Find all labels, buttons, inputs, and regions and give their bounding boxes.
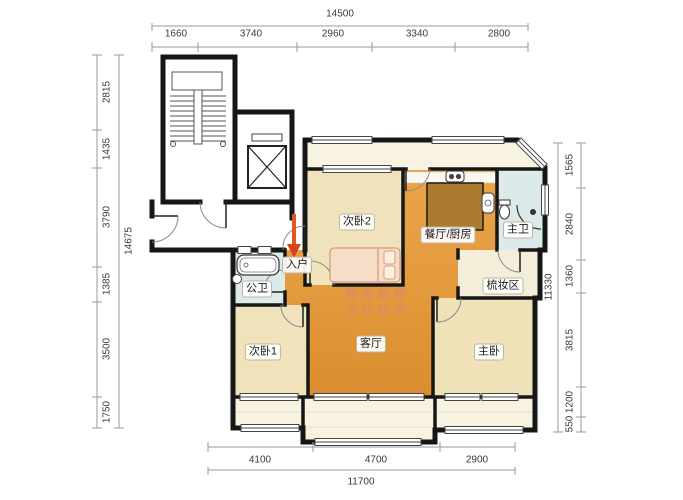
stairs-icon [170,72,226,147]
bed-icon [330,248,400,282]
dim-line-left-segments [92,55,102,428]
room-label-public-bath: 公卫 [242,281,272,298]
room-label-master-bath: 主卫 [503,222,533,239]
corridor-walls [152,202,292,250]
dim-top-segment-4: 2800 [488,29,510,40]
room-label-dining-kitchen: 餐厅/厨房 [420,227,475,244]
window-balcony-center [315,439,421,446]
bathtub-icon [237,255,279,275]
room-label-bedroom1: 次卧1 [245,344,281,361]
dim-left-segment-3: 1385 [102,273,113,295]
dim-line-top-segments [152,42,528,52]
toilet-icon [499,200,510,219]
dim-left-total: 14675 [124,227,135,255]
dim-right-segment-0: 1565 [565,154,576,176]
room-label-master-bedroom: 主卧 [474,344,504,361]
room-label-bedroom2: 次卧2 [339,214,375,231]
dim-right-segment-2: 1360 [565,265,576,287]
dim-right-total: 11330 [544,273,555,300]
floorplan-page: 楼房装修 设计助手 次卧2 餐厅/厨房 主卫 入户 公卫 梳妆区 次卧1 客厅 … [0,0,683,500]
balcony-right-floor [435,397,535,430]
dim-line-right-total [553,143,563,432]
window-bay-top [312,137,372,144]
dim-bottom-segment-1: 4700 [365,455,387,466]
dim-right-segment-1: 2840 [565,213,576,235]
dim-line-left-total [114,55,124,428]
dim-bottom-segment-2: 2900 [466,455,488,466]
elevator-icon [248,134,286,188]
room-label-dressing-area: 梳妆区 [483,278,524,295]
dim-left-segment-0: 2815 [102,81,113,103]
dim-line-right-segments [576,143,586,432]
balcony-center-floor [303,397,435,442]
dim-right-segment-4: 1200 [565,391,576,413]
dim-top-segment-2: 2960 [322,29,344,40]
dim-right-segment-5: 550 [565,416,576,433]
window-bedroom1-south [240,394,298,401]
window-living-south-2 [369,394,424,401]
window-master-south-2 [482,394,518,401]
window-master-south-1 [445,394,480,401]
window-bedroom2-bay [323,166,391,173]
dim-top-segment-3: 3340 [406,29,428,40]
room-label-living-room: 客厅 [356,336,386,353]
dim-right-segment-3: 3815 [565,329,576,351]
window-kitchen-top [432,137,504,144]
washbasin-icon [233,275,242,284]
window-master-bath [542,185,549,215]
dim-top-total: 14500 [326,9,354,20]
dim-line-bottom-total [208,467,515,475]
floor-plan-canvas [0,0,683,500]
window-living-south-1 [314,394,367,401]
window-balcony-right [445,427,523,434]
dim-left-segment-1: 1435 [102,138,113,160]
kitchen-sink-icon [482,193,494,213]
stove-icon [446,171,464,182]
dim-left-segment-5: 1750 [102,401,113,423]
dim-bottom-total: 11700 [347,477,374,488]
window-balcony-left [241,425,299,432]
window-public-bath-1 [238,247,251,254]
dim-left-segment-4: 3500 [102,338,113,360]
dim-top-segment-0: 1660 [165,29,187,40]
dim-top-segment-1: 3740 [240,29,262,40]
window-public-bath-2 [258,247,271,254]
dim-left-segment-2: 3790 [102,206,113,228]
room-label-entry: 入户 [282,257,312,274]
dim-bottom-segment-0: 4100 [249,455,271,466]
